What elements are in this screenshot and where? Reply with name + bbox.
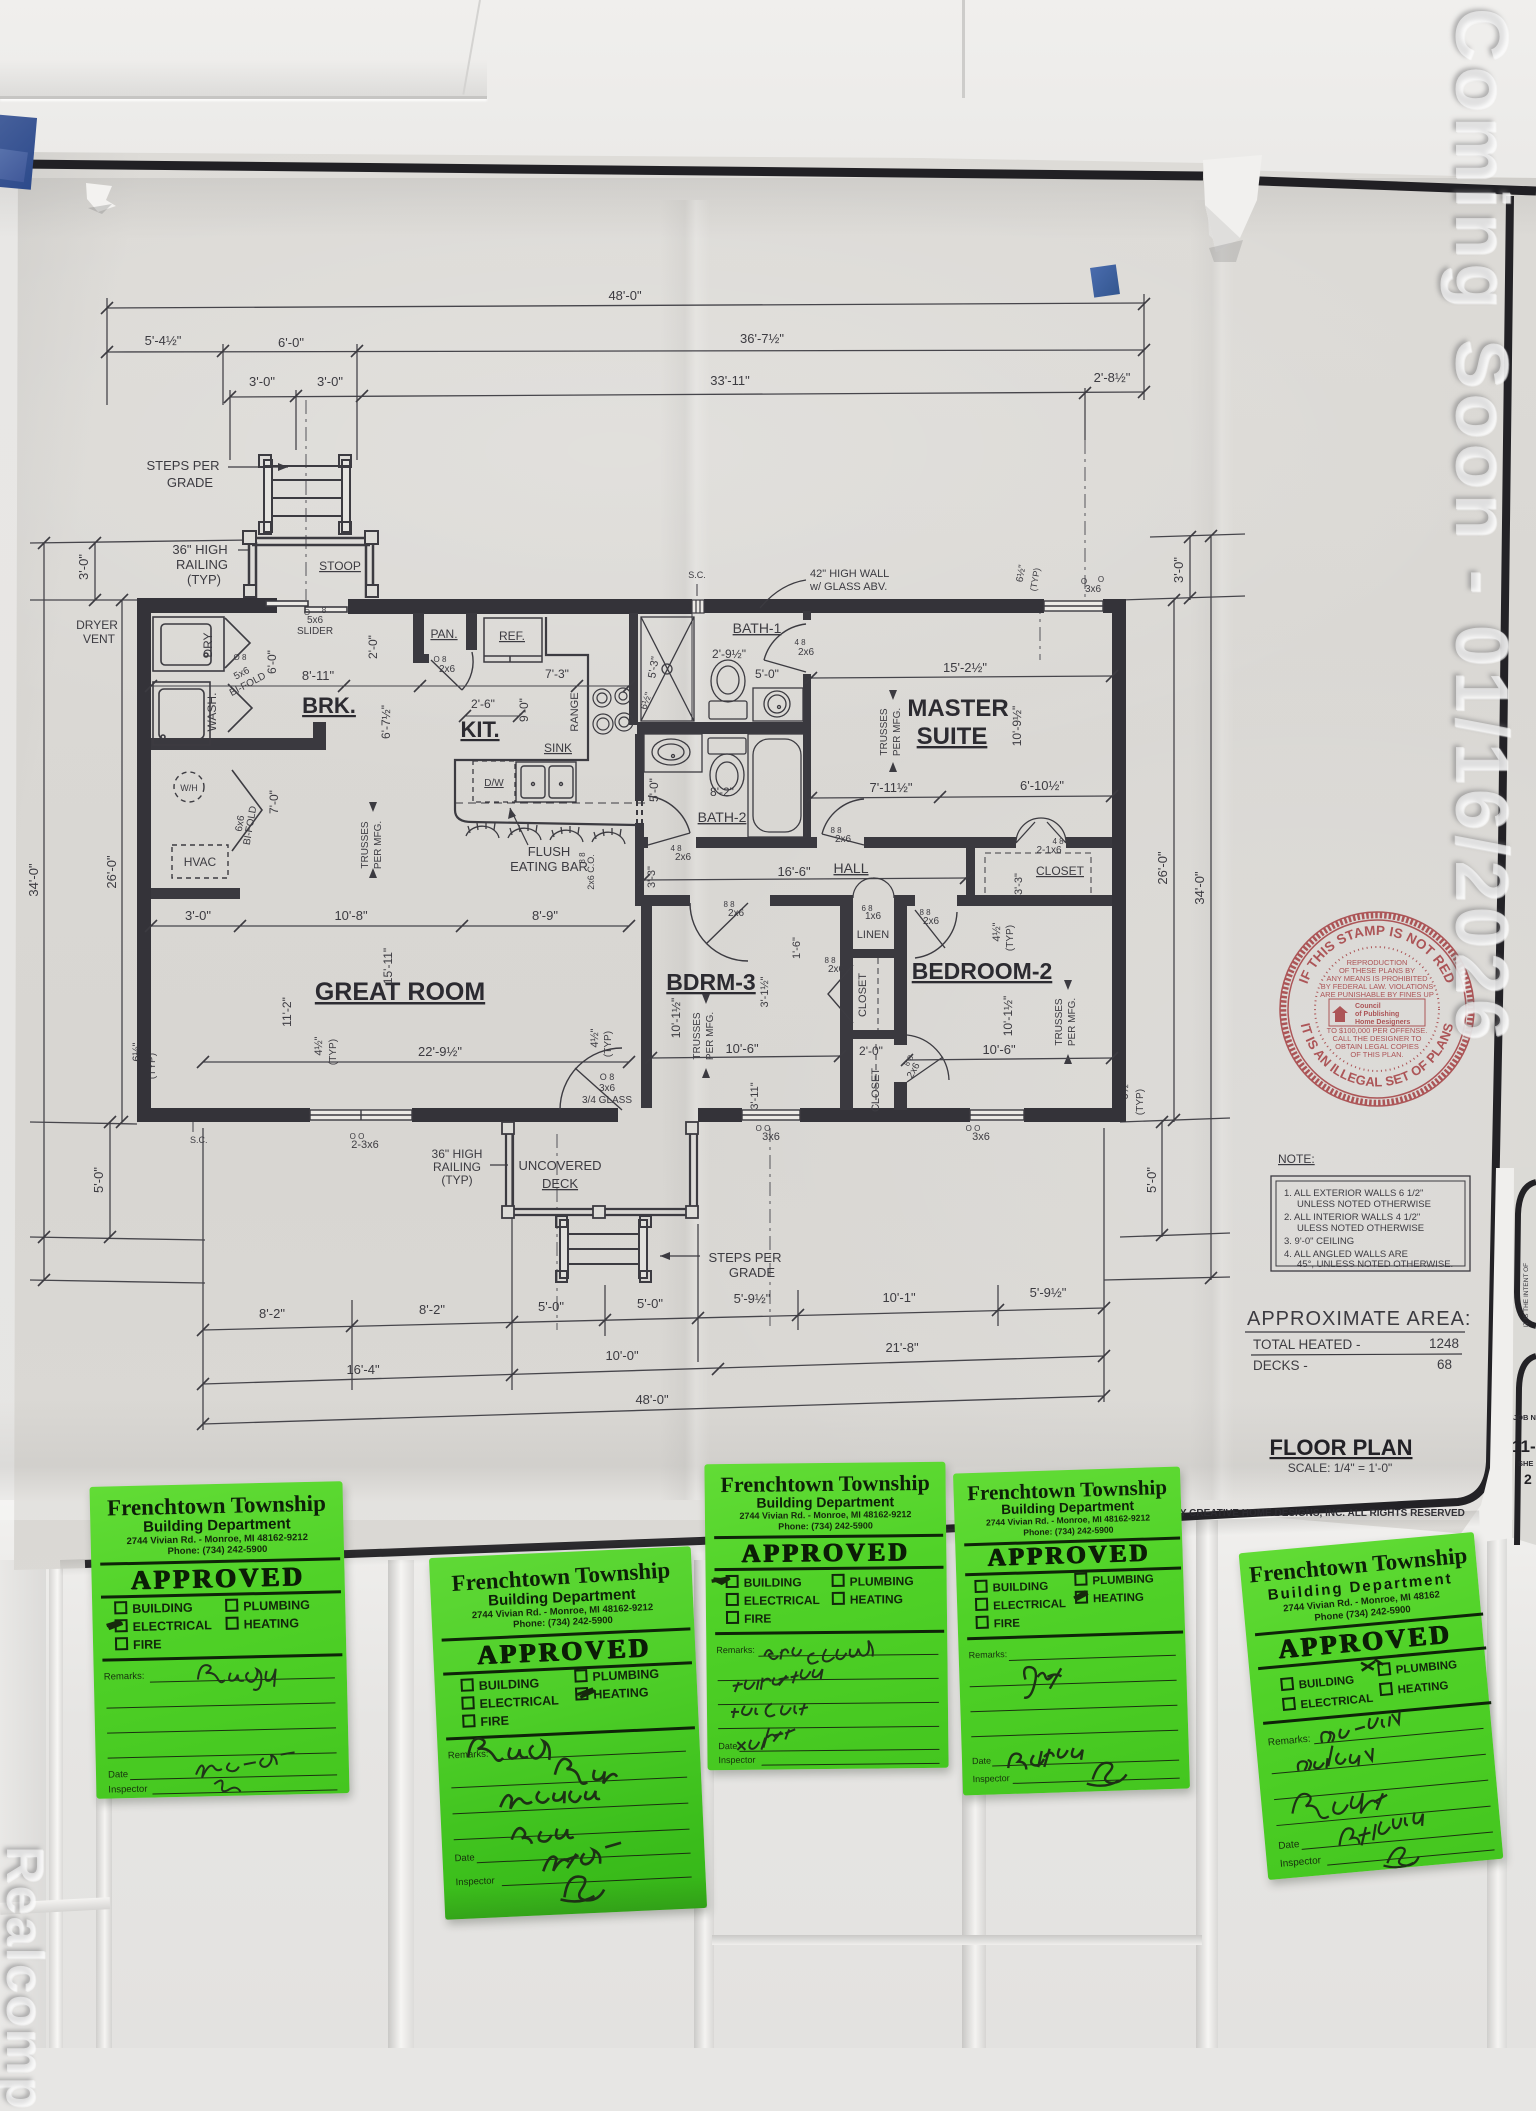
svg-text:2x6: 2x6: [675, 852, 692, 863]
svg-text:SCALE: 1/4" = 1'-0": SCALE: 1/4" = 1'-0": [1288, 1461, 1393, 1475]
svg-text:BATH-2: BATH-2: [698, 809, 747, 825]
svg-text:W/H: W/H: [180, 783, 198, 793]
svg-text:O: O: [304, 608, 310, 617]
svg-text:10'-0": 10'-0": [605, 1348, 639, 1363]
svg-text:8'-11": 8'-11": [302, 668, 335, 683]
svg-text:26'-0": 26'-0": [104, 855, 119, 889]
svg-text:MASTER: MASTER: [907, 695, 1008, 722]
svg-text:33'-11": 33'-11": [710, 373, 750, 388]
svg-text:OF THIS PLAN.: OF THIS PLAN.: [1350, 1050, 1403, 1059]
svg-text:DRY: DRY: [201, 632, 215, 657]
svg-text:1. ALL EXTERIOR WALLS 6 1/2": 1. ALL EXTERIOR WALLS 6 1/2": [1284, 1188, 1423, 1199]
svg-text:(TYP): (TYP): [187, 572, 221, 587]
svg-text:4½": 4½": [991, 922, 1003, 941]
svg-text:7'-11½": 7'-11½": [870, 780, 913, 795]
svg-text:SLIDER: SLIDER: [297, 626, 333, 637]
svg-text:O 8: O 8: [234, 653, 247, 662]
svg-text:3'-11": 3'-11": [749, 1082, 761, 1109]
svg-text:3'-0": 3'-0": [185, 908, 211, 923]
svg-text:45°, UNLESS NOTED OTHERWISE.: 45°, UNLESS NOTED OTHERWISE.: [1297, 1259, 1453, 1270]
svg-text:3/4 GLASS: 3/4 GLASS: [582, 1095, 632, 1106]
svg-text:DECKS -: DECKS -: [1253, 1358, 1308, 1373]
svg-text:O 8: O 8: [600, 1072, 615, 1082]
svg-text:O O: O O: [756, 1124, 771, 1133]
svg-text:TOTAL HEATED -: TOTAL HEATED -: [1253, 1337, 1361, 1352]
svg-text:VENT: VENT: [83, 632, 116, 646]
svg-text:BEDROOM-2: BEDROOM-2: [912, 958, 1053, 984]
svg-text:16'-6": 16'-6": [777, 864, 811, 879]
svg-text:3'-0": 3'-0": [76, 554, 91, 580]
svg-text:(TYP): (TYP): [1135, 1089, 1146, 1115]
svg-text:O: O: [1081, 577, 1087, 586]
svg-text:5'-0": 5'-0": [91, 1167, 106, 1193]
svg-text:S.C.: S.C.: [190, 1135, 208, 1145]
svg-text:2x6: 2x6: [828, 964, 845, 975]
svg-text:8'-9": 8'-9": [532, 908, 558, 923]
svg-text:1248: 1248: [1429, 1336, 1459, 1351]
svg-text:FLOOR PLAN: FLOOR PLAN: [1270, 1435, 1413, 1460]
svg-text:SINK: SINK: [544, 741, 572, 755]
svg-text:STEPS PER: STEPS PER: [147, 458, 220, 473]
svg-text:O O: O O: [966, 1124, 981, 1133]
svg-text:GREAT ROOM: GREAT ROOM: [315, 978, 485, 1006]
svg-text:w/ GLASS ABV.: w/ GLASS ABV.: [809, 581, 887, 593]
svg-text:FLUSH: FLUSH: [528, 844, 571, 859]
svg-text:10'-6": 10'-6": [982, 1042, 1016, 1057]
svg-text:3'-0": 3'-0": [1171, 557, 1186, 583]
svg-text:EATING BAR: EATING BAR: [510, 859, 588, 874]
svg-text:2'-9½": 2'-9½": [712, 647, 746, 661]
svg-text:15'-2½": 15'-2½": [943, 660, 987, 675]
svg-text:BI-FOLD: BI-FOLD: [242, 805, 260, 846]
svg-text:10'-6": 10'-6": [725, 1041, 759, 1056]
svg-text:6½": 6½": [1015, 564, 1029, 584]
svg-text:RAILING: RAILING: [433, 1160, 481, 1174]
svg-text:3'-3": 3'-3": [1013, 873, 1025, 895]
svg-text:10'-1": 10'-1": [882, 1290, 916, 1305]
svg-text:2-1x6: 2-1x6: [1036, 845, 1061, 856]
svg-text:10'-8": 10'-8": [334, 908, 368, 923]
svg-text:8 8: 8 8: [824, 956, 836, 965]
svg-text:5'-0": 5'-0": [637, 1296, 663, 1311]
svg-text:GRADE: GRADE: [729, 1265, 776, 1280]
svg-text:34'-0": 34'-0": [1192, 871, 1207, 905]
svg-text:3x6: 3x6: [1085, 584, 1102, 595]
svg-text:6'-7½": 6'-7½": [379, 705, 393, 739]
svg-text:8 8: 8 8: [723, 900, 735, 909]
svg-text:8'-2": 8'-2": [419, 1302, 445, 1317]
svg-text:HVAC: HVAC: [184, 855, 217, 869]
svg-text:4 8: 4 8: [794, 638, 806, 647]
svg-text:PAN.: PAN.: [430, 627, 457, 641]
svg-text:HALL: HALL: [833, 860, 868, 876]
svg-text:68: 68: [1437, 1357, 1452, 1372]
svg-text:2x6: 2x6: [835, 834, 852, 845]
svg-text:22'-9½": 22'-9½": [418, 1044, 462, 1059]
svg-text:IT IS THE INTENT OF: IT IS THE INTENT OF: [1523, 1263, 1530, 1327]
svg-text:5'-0": 5'-0": [1144, 1167, 1159, 1193]
svg-text:LINEN: LINEN: [857, 929, 889, 941]
svg-text:PER MFG.: PER MFG.: [373, 821, 384, 869]
svg-text:11'-2": 11'-2": [280, 997, 294, 1027]
svg-text:NOTE:: NOTE:: [1278, 1152, 1315, 1166]
svg-text:TRUSSES: TRUSSES: [1054, 998, 1065, 1046]
svg-text:UNLESS NOTED OTHERWISE: UNLESS NOTED OTHERWISE: [1297, 1199, 1431, 1210]
svg-text:TRUSSES: TRUSSES: [692, 1012, 703, 1060]
svg-text:PER MFG.: PER MFG.: [1067, 998, 1078, 1046]
svg-text:RAILING: RAILING: [176, 557, 228, 572]
svg-text:O O: O O: [350, 1132, 365, 1141]
svg-text:11-: 11-: [1512, 1437, 1536, 1456]
svg-text:WASH.: WASH.: [205, 693, 219, 732]
svg-text:15'-11": 15'-11": [381, 948, 395, 984]
svg-text:O: O: [1098, 575, 1104, 584]
svg-text:5'-0": 5'-0": [538, 1299, 564, 1314]
svg-text:ULESS NOTED OTHERWISE: ULESS NOTED OTHERWISE: [1297, 1223, 1424, 1234]
svg-text:36" HIGH: 36" HIGH: [432, 1147, 483, 1161]
svg-text:BDRM-3: BDRM-3: [666, 969, 755, 995]
svg-text:6 8: 6 8: [861, 904, 873, 913]
svg-text:KIT.: KIT.: [460, 717, 499, 742]
svg-text:UNCOVERED: UNCOVERED: [518, 1158, 601, 1173]
svg-text:7'-3": 7'-3": [545, 667, 569, 681]
svg-text:PER MFG.: PER MFG.: [705, 1012, 716, 1060]
svg-text:SUITE: SUITE: [917, 723, 988, 750]
svg-text:5'-0": 5'-0": [755, 667, 779, 681]
svg-text:(TYP): (TYP): [603, 1031, 614, 1057]
svg-text:2x6: 2x6: [798, 647, 815, 658]
svg-text:(TYP): (TYP): [328, 1039, 339, 1065]
svg-text:of Publishing: of Publishing: [1355, 1011, 1399, 1018]
svg-text:8'-2": 8'-2": [259, 1306, 285, 1321]
svg-text:(TYP): (TYP): [1028, 567, 1042, 592]
svg-text:REF.: REF.: [499, 629, 525, 643]
svg-text:2x6: 2x6: [923, 916, 940, 927]
svg-text:BATH-1: BATH-1: [733, 620, 782, 636]
svg-text:36" HIGH: 36" HIGH: [172, 542, 227, 557]
svg-text:STOOP: STOOP: [319, 559, 361, 573]
svg-text:5'-3": 5'-3": [646, 656, 662, 680]
svg-text:5'-4½": 5'-4½": [145, 333, 182, 348]
svg-text:Home Designers: Home Designers: [1355, 1019, 1410, 1026]
svg-text:2'-8½": 2'-8½": [1094, 370, 1131, 385]
svg-text:6'-0": 6'-0": [278, 335, 304, 350]
svg-text:DRYER: DRYER: [76, 618, 118, 632]
svg-text:5'-9½": 5'-9½": [1030, 1285, 1067, 1300]
svg-text:PER MFG.: PER MFG.: [892, 708, 903, 756]
svg-text:8: 8: [322, 606, 327, 615]
svg-text:TRUSSES: TRUSSES: [360, 821, 371, 869]
svg-text:8 8: 8 8: [830, 826, 842, 835]
svg-text:BRK.: BRK.: [302, 693, 356, 718]
svg-text:4 8: 4 8: [670, 844, 682, 853]
svg-text:2. ALL INTERIOR WALLS 4 1/2": 2. ALL INTERIOR WALLS 4 1/2": [1284, 1212, 1420, 1223]
svg-text:3x6: 3x6: [599, 1083, 616, 1094]
svg-text:48'-0": 48'-0": [635, 1392, 669, 1407]
svg-text:JOB N: JOB N: [1513, 1413, 1536, 1422]
svg-text:5'-9½": 5'-9½": [734, 1291, 771, 1306]
svg-text:16'-4": 16'-4": [346, 1362, 380, 1377]
svg-text:6'-0": 6'-0": [265, 650, 279, 674]
svg-text:4½": 4½": [589, 1028, 601, 1047]
svg-text:7'-0": 7'-0": [267, 790, 281, 814]
svg-text:34'-0": 34'-0": [26, 863, 41, 897]
svg-text:O 8: O 8: [434, 655, 447, 664]
svg-text:10'-1½": 10'-1½": [669, 998, 683, 1039]
svg-text:3. 9'-0" CEILING: 3. 9'-0" CEILING: [1284, 1236, 1354, 1247]
svg-text:D/W: D/W: [484, 778, 504, 789]
svg-text:1'-6": 1'-6": [791, 937, 803, 959]
svg-text:2'-6": 2'-6": [471, 697, 495, 711]
svg-text:8'-2": 8'-2": [710, 785, 734, 799]
svg-text:GRADE: GRADE: [167, 475, 214, 490]
svg-text:48'-0": 48'-0": [608, 288, 642, 303]
svg-text:2x6: 2x6: [728, 908, 745, 919]
svg-text:ARE PUNISHABLE BY FINES UP: ARE PUNISHABLE BY FINES UP: [1320, 990, 1434, 999]
svg-text:DECK: DECK: [542, 1176, 578, 1191]
svg-text:2'-0": 2'-0": [859, 1044, 883, 1058]
svg-text:10'-1½": 10'-1½": [1001, 996, 1015, 1037]
svg-text:3'-0": 3'-0": [317, 374, 343, 389]
svg-text:2'-0": 2'-0": [366, 635, 380, 659]
svg-text:RANGE: RANGE: [569, 692, 581, 731]
svg-text:STEPS PER: STEPS PER: [709, 1250, 782, 1265]
svg-text:(TYP): (TYP): [1005, 925, 1016, 951]
svg-text:APPROXIMATE AREA:: APPROXIMATE AREA:: [1247, 1308, 1471, 1330]
svg-text:8 8: 8 8: [919, 908, 931, 917]
svg-text:CLOSET: CLOSET: [857, 973, 869, 1017]
svg-text:36'-7½": 36'-7½": [740, 331, 784, 346]
svg-text:Council: Council: [1355, 1003, 1381, 1010]
svg-text:(TYP): (TYP): [441, 1173, 472, 1187]
svg-text:TRUSSES: TRUSSES: [879, 708, 890, 756]
svg-text:6'-10½": 6'-10½": [1020, 778, 1064, 793]
svg-text:2x6: 2x6: [439, 664, 456, 675]
svg-text:10'-9½": 10'-9½": [1010, 706, 1024, 747]
svg-text:S.C.: S.C.: [688, 570, 706, 580]
svg-text:21'-8": 21'-8": [885, 1340, 919, 1355]
svg-text:3'-1½": 3'-1½": [759, 976, 771, 1007]
svg-text:SHE: SHE: [1518, 1459, 1533, 1468]
svg-text:42" HIGH WALL: 42" HIGH WALL: [810, 568, 889, 580]
svg-text:4½": 4½": [313, 1036, 325, 1055]
svg-text:2: 2: [1524, 1471, 1532, 1487]
svg-text:CLOSET: CLOSET: [1036, 864, 1085, 878]
svg-text:3'-0": 3'-0": [249, 374, 275, 389]
svg-text:26'-0": 26'-0": [1155, 851, 1170, 885]
